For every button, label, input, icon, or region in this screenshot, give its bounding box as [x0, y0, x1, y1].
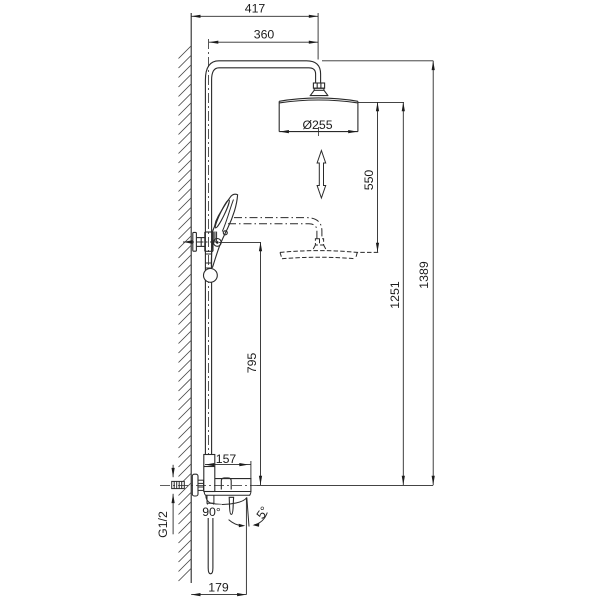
svg-text:G1/2: G1/2: [156, 511, 170, 538]
svg-text:1389: 1389: [417, 261, 431, 289]
svg-text:Ø255: Ø255: [302, 118, 332, 132]
svg-text:417: 417: [245, 2, 266, 16]
svg-text:1251: 1251: [388, 281, 402, 309]
svg-text:179: 179: [208, 581, 229, 595]
svg-text:360: 360: [254, 28, 275, 42]
svg-text:550: 550: [362, 170, 376, 191]
svg-text:90°: 90°: [202, 505, 221, 519]
svg-text:795: 795: [245, 353, 259, 374]
svg-text:157: 157: [216, 452, 237, 466]
